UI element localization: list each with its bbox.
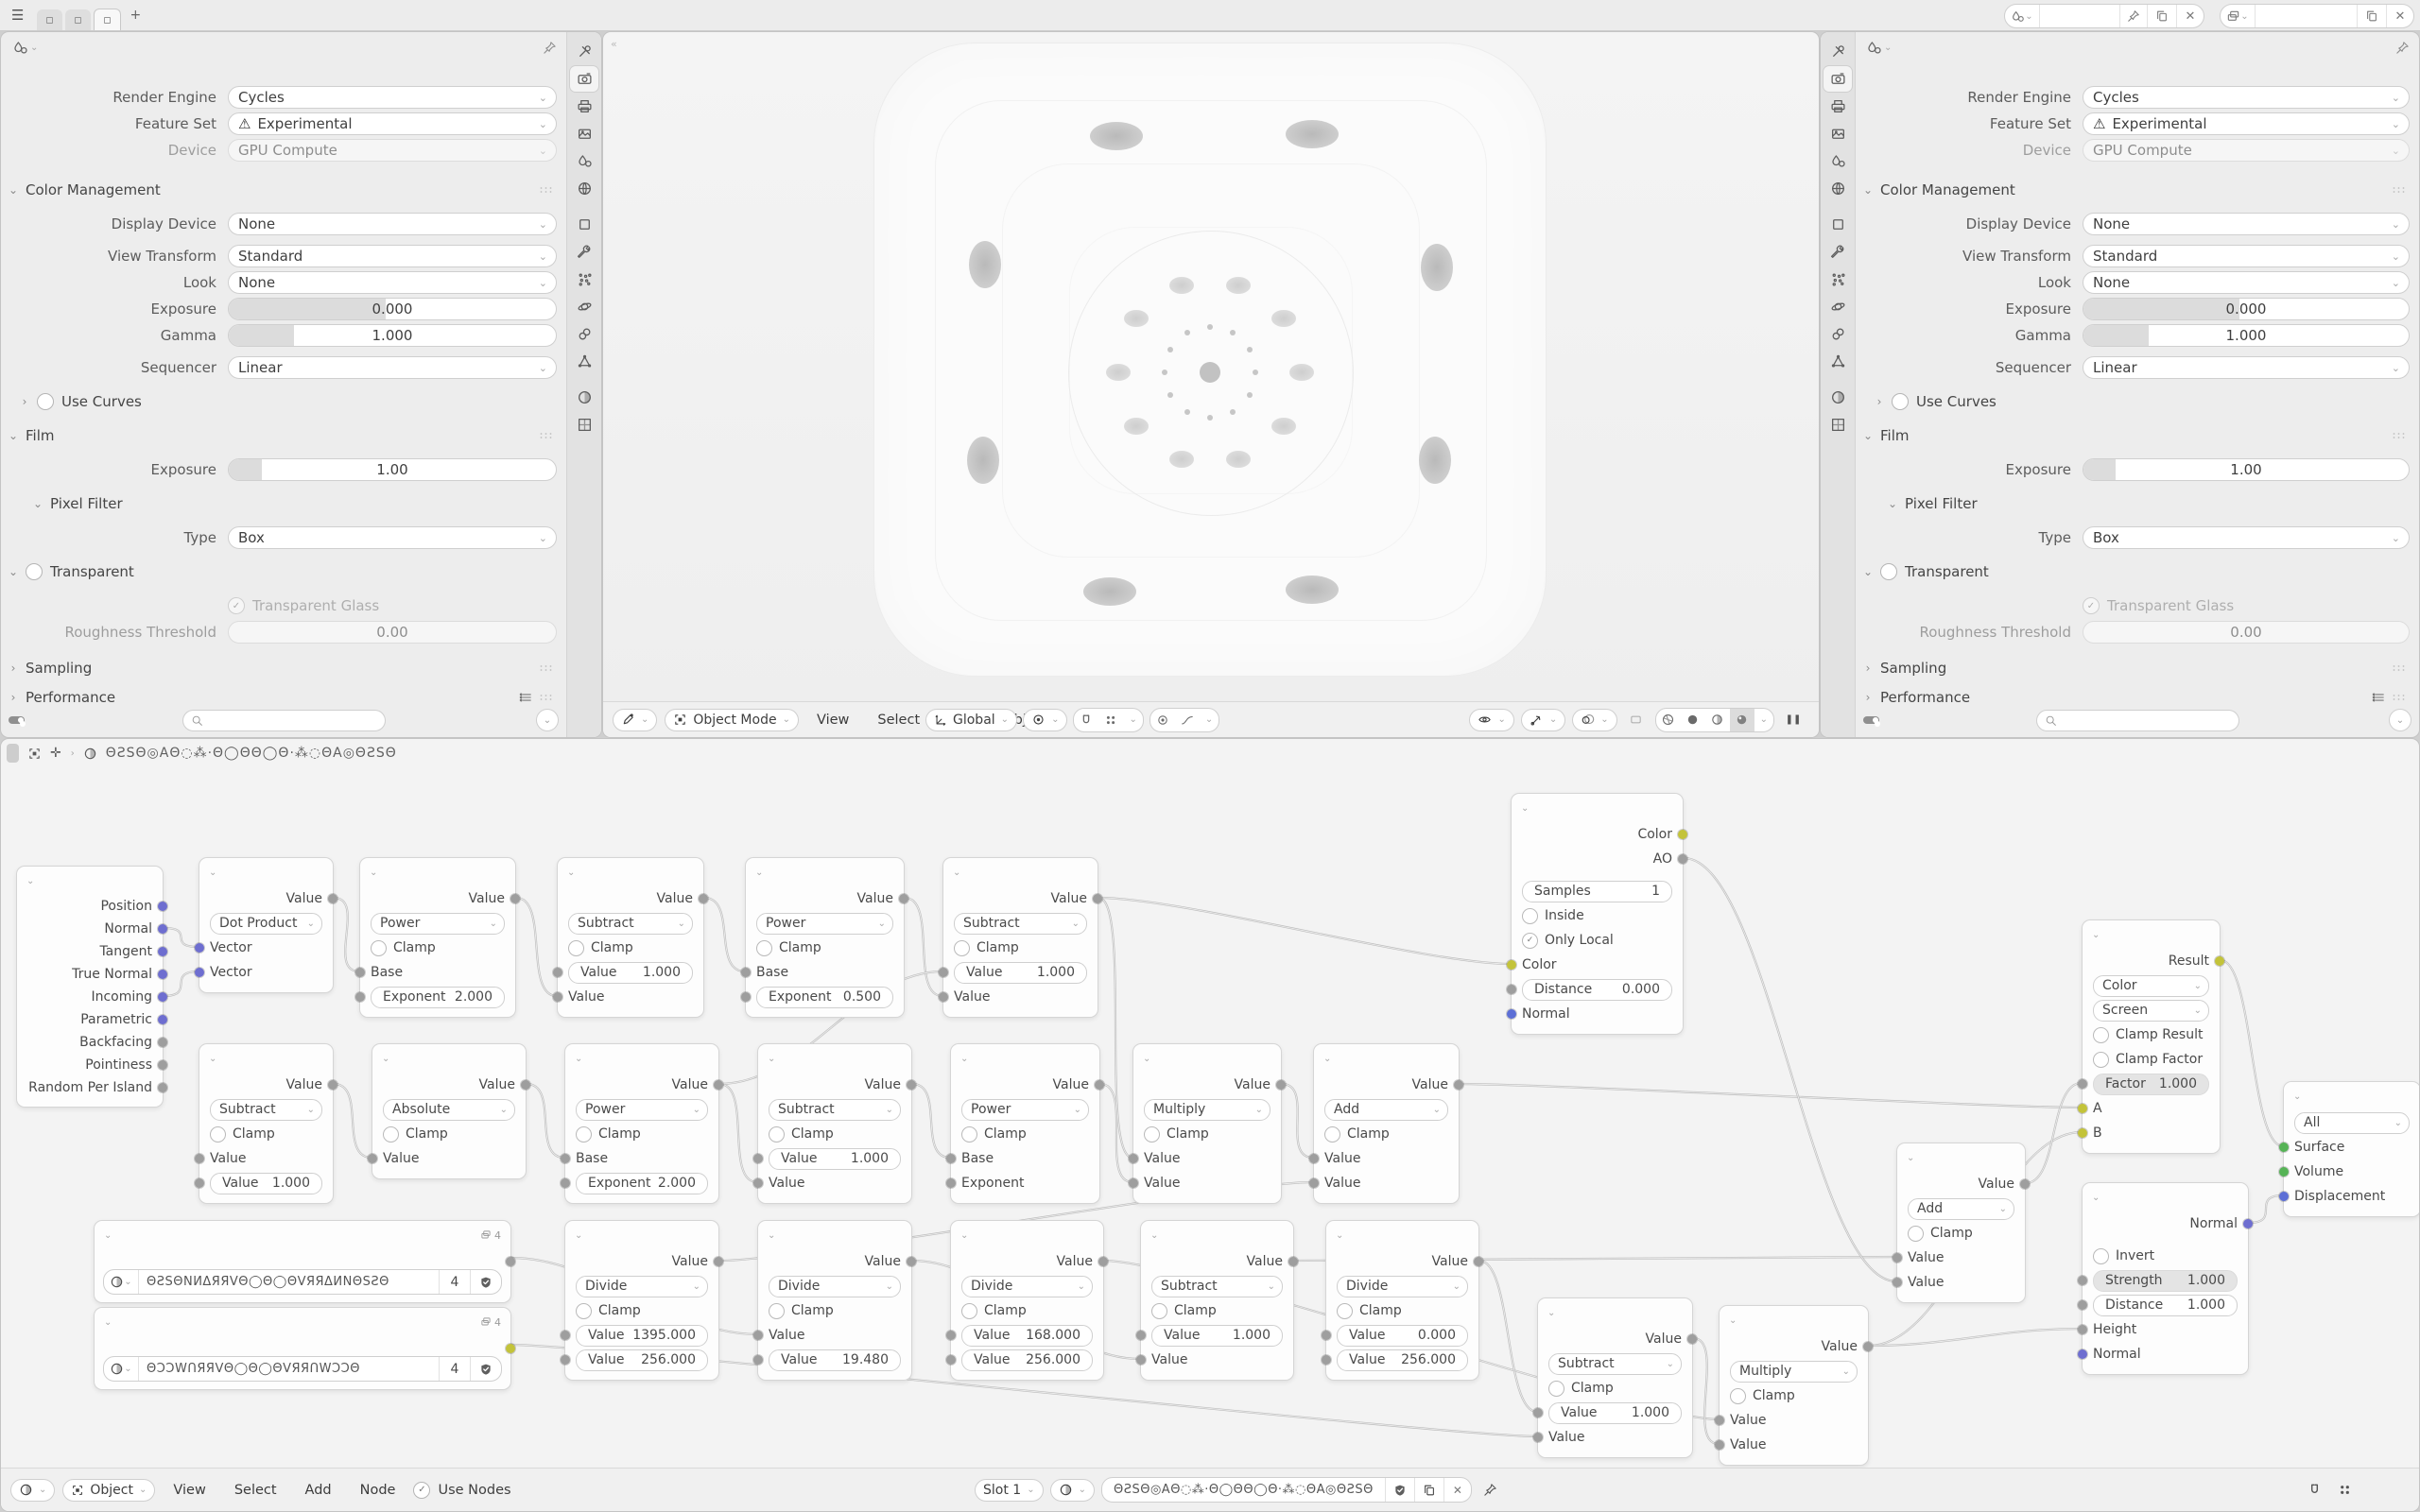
node-math-subtract-6[interactable]: ⌄ValueSubtract⌄ClampValue1.000Value (1537, 1297, 1693, 1458)
section-header-film[interactable]: ⌄Film (1856, 423, 2419, 448)
socket-in-value[interactable] (939, 992, 948, 1002)
tab-modifiers[interactable] (1824, 239, 1852, 265)
tab-texture[interactable] (1824, 412, 1852, 438)
workspace-tab-3[interactable] (94, 9, 121, 30)
collapse-node-icon[interactable]: ⌄ (370, 868, 377, 878)
checkbox-clamp-factor[interactable] (2093, 1052, 2109, 1068)
node-operation-select[interactable]: Subtract⌄ (1548, 1353, 1682, 1375)
tab-particles[interactable] (570, 266, 598, 292)
checkbox[interactable] (1892, 393, 1909, 410)
node-header[interactable]: ⌄ (1133, 1044, 1281, 1073)
socket-in-value[interactable] (1715, 1440, 1724, 1450)
node-operation-select[interactable]: Power⌄ (961, 1099, 1089, 1121)
node-operation-select[interactable]: Divide⌄ (576, 1276, 708, 1297)
image-datablock-selector[interactable]: ⌄ΘƧSΘNИΔЯЯVΘ◯Θ◯ΘVЯЯΔИNΘSƧΘ4 (103, 1269, 502, 1295)
socket-in-displacement[interactable] (2279, 1192, 2289, 1201)
editor-type-selector[interactable]: ⌄ (10, 1479, 55, 1502)
collapse-node-icon[interactable]: ⌄ (1323, 1054, 1331, 1064)
checkbox[interactable] (37, 393, 54, 410)
socket-in-color[interactable] (1507, 960, 1516, 970)
tab-output[interactable] (570, 94, 598, 119)
node-operation-select[interactable]: Add⌄ (1324, 1099, 1448, 1121)
collapse-node-icon[interactable]: ⌄ (1907, 1153, 1914, 1163)
value-field-value[interactable]: Value256.000 (1337, 1349, 1468, 1371)
socket-in-value[interactable] (195, 1154, 204, 1163)
node-math-subtract-4[interactable]: ⌄ValueSubtract⌄ClampValue1.000Value (757, 1043, 912, 1204)
socket-out-pointiness[interactable] (158, 1060, 167, 1070)
checkbox-clamp[interactable] (1730, 1388, 1746, 1404)
collapse-node-icon[interactable]: ⌄ (209, 1054, 216, 1064)
socket-out-value[interactable] (907, 1080, 916, 1090)
node-header[interactable]: ⌄4 (95, 1308, 510, 1336)
node-operation-select[interactable]: Screen⌄ (2093, 1000, 2209, 1022)
value-field-distance[interactable]: Distance1.000 (2093, 1295, 2238, 1316)
section-header-performance[interactable]: ›Performance (1856, 685, 2419, 703)
checkbox-invert[interactable] (2093, 1248, 2109, 1264)
checkbox-clamp[interactable] (576, 1303, 592, 1319)
value-field-value[interactable]: Value0.000 (1337, 1325, 1468, 1347)
gizmo-dropdown[interactable]: ⌄ (1521, 709, 1565, 731)
node-math-multiply-1[interactable]: ⌄ValueMultiply⌄ClampValueValue (1132, 1043, 1282, 1204)
tab-world[interactable] (1824, 176, 1852, 201)
node-header[interactable]: ⌄ (372, 1044, 526, 1073)
socket-in-value[interactable] (553, 992, 562, 1002)
socket-out[interactable] (506, 1344, 515, 1353)
socket-in-base[interactable] (355, 968, 365, 977)
shading-mode-switch[interactable]: ⌄ (1655, 708, 1774, 732)
tab-material[interactable] (1824, 385, 1852, 410)
pin-icon[interactable] (543, 41, 557, 55)
section-header-sampling[interactable]: ›Sampling (1, 656, 566, 680)
section-header-transparent[interactable]: ⌄Transparent (1856, 559, 2419, 584)
shading-rendered[interactable] (1730, 709, 1754, 731)
socket-out-value[interactable] (1454, 1080, 1463, 1090)
dropdown-look[interactable]: None⌄ (2083, 271, 2410, 294)
socket-out-result[interactable] (2215, 956, 2224, 966)
value-field-value[interactable]: Value1.000 (769, 1148, 901, 1170)
collapse-node-icon[interactable]: ⌄ (1547, 1308, 1555, 1318)
collapse-node-icon[interactable]: ⌄ (382, 1054, 389, 1064)
scene-browse-button[interactable]: ⌄ (2005, 5, 2039, 27)
tab-data[interactable] (570, 349, 598, 374)
socket-in-value[interactable] (1715, 1416, 1724, 1425)
checkbox-transparent-glass[interactable]: ✓ (2083, 597, 2100, 614)
checkbox-clamp[interactable] (383, 1126, 399, 1143)
dropdown-type[interactable]: Box⌄ (228, 526, 557, 549)
node-math-power-4[interactable]: ⌄ValuePower⌄ClampBaseExponent (950, 1043, 1100, 1204)
value-field-exponent[interactable]: Exponent2.000 (371, 987, 505, 1008)
tab-texture[interactable] (570, 412, 598, 438)
socket-in-value[interactable] (946, 1331, 956, 1340)
viewport-3d[interactable]: «⌄Object Mode⌄ViewSelectAddObjectGlobal⌄… (602, 31, 1820, 738)
checkbox-inside[interactable] (1522, 908, 1538, 924)
node-operation-select[interactable]: Subtract⌄ (568, 913, 693, 935)
tab-data[interactable] (1824, 349, 1852, 374)
node-operation-select[interactable]: Divide⌄ (1337, 1276, 1468, 1297)
workspace-tab-2[interactable] (65, 9, 91, 30)
socket-in-value[interactable] (553, 968, 562, 977)
tab-object[interactable] (570, 212, 598, 237)
dropdown-feature-set[interactable]: ⚠Experimental⌄ (228, 112, 557, 135)
socket-out-ao[interactable] (1678, 854, 1687, 864)
node-math-absolute[interactable]: ⌄ValueAbsolute⌄ClampValue (372, 1043, 527, 1179)
socket-out-value[interactable] (1474, 1257, 1483, 1266)
tab-physics[interactable] (570, 294, 598, 319)
tab-constraints[interactable] (1824, 321, 1852, 347)
socket-in-value[interactable] (1136, 1331, 1146, 1340)
socket-in-value[interactable] (1129, 1178, 1138, 1188)
checkbox-clamp[interactable] (576, 1126, 592, 1143)
dropdown-display-device[interactable]: None⌄ (2083, 213, 2410, 235)
node-math-subtract-1[interactable]: ⌄ValueSubtract⌄ClampValue1.000Value (557, 857, 704, 1018)
node-geometry[interactable]: ⌄PositionNormalTangentTrue NormalIncomin… (16, 866, 164, 1108)
node-header[interactable]: ⌄ (758, 1044, 911, 1073)
socket-in-value[interactable] (753, 1178, 763, 1188)
value-field-factor[interactable]: Factor1.000 (2093, 1074, 2209, 1095)
checkbox-clamp[interactable] (568, 940, 584, 956)
checkbox-clamp[interactable] (1548, 1381, 1564, 1397)
node-operation-select[interactable]: Divide⌄ (961, 1276, 1093, 1297)
scene-name-field[interactable] (2039, 5, 2119, 27)
slider-exposure[interactable]: 0.000 (2083, 298, 2410, 320)
workspace-tab-1[interactable] (37, 9, 62, 30)
socket-in-exponent[interactable] (355, 992, 365, 1002)
node-header[interactable]: ⌄ (558, 858, 703, 886)
node-operation-select[interactable]: Subtract⌄ (210, 1099, 322, 1121)
falloff-icon[interactable] (1175, 709, 1200, 731)
socket-in-value[interactable] (1309, 1178, 1319, 1188)
node-header[interactable]: ⌄ (1326, 1221, 1478, 1249)
tab-particles[interactable] (1824, 266, 1852, 292)
pin-icon[interactable] (2395, 41, 2410, 55)
socket-out-value[interactable] (1093, 894, 1102, 903)
proportional-editing-controls[interactable]: ⌄ (1149, 708, 1219, 732)
slider-roughness-threshold[interactable]: 0.00 (228, 621, 557, 644)
socket-in-value[interactable] (939, 968, 948, 977)
socket-out-value[interactable] (521, 1080, 530, 1090)
filter-toggle-icon[interactable] (9, 715, 26, 725)
checkbox-clamp[interactable] (1151, 1303, 1167, 1319)
collapse-node-icon[interactable]: ⌄ (960, 1230, 968, 1241)
section-header-use-curves[interactable]: ›Use Curves (1, 389, 566, 414)
menu-view[interactable]: View (163, 1483, 216, 1498)
scene-pin-button[interactable] (2119, 5, 2147, 27)
node-ambient-occlusion[interactable]: ⌄ColorAOSamples1Inside✓Only LocalColorDi… (1511, 793, 1684, 1035)
checkbox-clamp[interactable] (1144, 1126, 1160, 1143)
socket-in-value[interactable] (1533, 1408, 1543, 1417)
socket-out-backfacing[interactable] (158, 1038, 167, 1047)
socket-out-value[interactable] (1288, 1257, 1298, 1266)
view-layer-copy-button[interactable] (2357, 5, 2386, 27)
socket-in-value[interactable] (753, 1355, 763, 1365)
node-operation-select[interactable]: All⌄ (2294, 1112, 2410, 1134)
fake-user-toggle[interactable] (470, 1270, 501, 1294)
socket-out-parametric[interactable] (158, 1015, 167, 1024)
material-name-group[interactable]: ΘƧSΘ◎AΘ◌⁂·Θ◯ΘΘ◯Θ·⁂◌ΘA◎ΘƧSΘ✕ (1101, 1477, 1472, 1503)
section-header-film[interactable]: ⌄Film (1, 423, 566, 448)
tab-world[interactable] (570, 176, 598, 201)
tab-render[interactable] (570, 66, 598, 92)
node-header[interactable]: ⌄ (951, 1044, 1099, 1073)
collapse-region-icon[interactable]: « (611, 38, 617, 50)
checkbox-clamp[interactable] (1324, 1126, 1340, 1143)
socket-in-base[interactable] (561, 1154, 570, 1163)
node-header[interactable]: ⌄ (1512, 794, 1683, 822)
node-operation-select[interactable]: Add⌄ (1908, 1198, 2014, 1220)
socket-in-value[interactable] (1893, 1253, 1902, 1263)
mode-selector[interactable]: Object Mode⌄ (665, 709, 799, 731)
dropdown-device[interactable]: GPU Compute⌄ (228, 139, 557, 162)
scene-copy-button[interactable] (2147, 5, 2176, 27)
node-math-divide-2[interactable]: ⌄ValueDivide⌄ClampValueValue19.480 (757, 1220, 912, 1381)
socket-out-random-per-island[interactable] (158, 1083, 167, 1092)
socket-in-surface[interactable] (2279, 1143, 2289, 1152)
node-header[interactable]: ⌄ (951, 1221, 1103, 1249)
node-operation-select[interactable]: Power⌄ (371, 913, 505, 935)
checkbox-clamp[interactable] (371, 940, 387, 956)
socket-in-value[interactable] (753, 1331, 763, 1340)
collapse-node-icon[interactable]: ⌄ (209, 868, 216, 878)
dropdown-look[interactable]: None⌄ (228, 271, 557, 294)
node-math-subtract-5[interactable]: ⌄ValueSubtract⌄ClampValue1.000Value (1140, 1220, 1294, 1381)
collapse-node-icon[interactable]: ⌄ (768, 1054, 775, 1064)
browse-image-button[interactable]: ⌄ (104, 1357, 138, 1381)
transform-orientation-selector[interactable]: Global⌄ (925, 709, 1017, 731)
tab-modifiers[interactable] (570, 239, 598, 265)
dropdown-display-device[interactable]: None⌄ (228, 213, 557, 235)
node-operation-select[interactable]: Divide⌄ (769, 1276, 901, 1297)
socket-in-value[interactable] (1136, 1355, 1146, 1365)
checkbox-transparent-glass[interactable]: ✓ (228, 597, 245, 614)
socket-in-base[interactable] (946, 1154, 956, 1163)
socket-out-value[interactable] (2020, 1179, 2030, 1189)
node-header[interactable]: ⌄ (565, 1044, 718, 1073)
browse-material-button[interactable]: ⌄ (1050, 1479, 1095, 1502)
value-field-value[interactable]: Value1395.000 (576, 1325, 708, 1347)
checkbox-clamp[interactable] (1908, 1226, 1924, 1242)
section-menu-icon[interactable] (519, 691, 532, 703)
tab-render[interactable] (1824, 66, 1852, 92)
socket-out[interactable] (506, 1257, 515, 1266)
socket-in-distance[interactable] (2078, 1300, 2087, 1310)
socket-out-value[interactable] (510, 894, 520, 903)
socket-in-value[interactable] (753, 1154, 763, 1163)
value-field-samples[interactable]: Samples1 (1522, 881, 1672, 902)
browse-image-button[interactable]: ⌄ (104, 1270, 138, 1294)
tab-scene[interactable] (570, 148, 598, 174)
section-header-color-management[interactable]: ⌄Color Management (1, 178, 566, 202)
checkbox-clamp[interactable] (210, 1126, 226, 1143)
tab-physics[interactable] (1824, 294, 1852, 319)
use-nodes-toggle[interactable]: ✓Use Nodes (413, 1482, 510, 1499)
fake-user-toggle[interactable] (470, 1357, 501, 1381)
dropdown-render-engine[interactable]: Cycles⌄ (228, 86, 557, 109)
collapse-node-icon[interactable]: ⌄ (1521, 803, 1529, 814)
node-vector-math-dot-product[interactable]: ⌄ValueDot Product⌄VectorVector (199, 857, 334, 993)
collapse-node-icon[interactable]: ⌄ (2092, 930, 2100, 940)
checkbox-clamp[interactable] (1337, 1303, 1353, 1319)
value-field-value[interactable]: Value256.000 (576, 1349, 708, 1371)
section-header-color-management[interactable]: ⌄Color Management (1856, 178, 2419, 202)
node-operation-select[interactable]: Power⌄ (756, 913, 893, 935)
node-header[interactable]: ⌄ (2083, 1183, 2248, 1211)
tab-object[interactable] (1824, 212, 1852, 237)
node-header[interactable]: ⌄ (1720, 1306, 1868, 1334)
collapse-node-icon[interactable]: ⌄ (1729, 1315, 1737, 1326)
node-header[interactable]: ⌄ (199, 858, 333, 886)
properties-editor-type-icon[interactable]: ⌄ (12, 40, 38, 56)
node-header[interactable]: ⌄ (746, 858, 904, 886)
visibility-dropdown[interactable]: ⌄ (1469, 709, 1513, 731)
annotate-tool-button[interactable]: ⌄ (613, 709, 657, 731)
tab-view-layer[interactable] (570, 121, 598, 146)
collapse-node-icon[interactable]: ⌄ (768, 1230, 775, 1241)
node-operation-select[interactable]: Absolute⌄ (383, 1099, 515, 1121)
collapse-node-icon[interactable]: ⌄ (1336, 1230, 1343, 1241)
node-operation-select[interactable]: Dot Product⌄ (210, 913, 322, 935)
slider-exposure[interactable]: 1.00 (228, 458, 557, 481)
socket-out-value[interactable] (1687, 1334, 1697, 1344)
socket-out-value[interactable] (328, 1080, 337, 1090)
value-field-value[interactable]: Value168.000 (961, 1325, 1093, 1347)
node-operation-select[interactable]: Subtract⌄ (1151, 1276, 1283, 1297)
collapse-node-icon[interactable]: ⌄ (104, 1317, 112, 1328)
checkbox-only-local[interactable]: ✓ (1522, 933, 1538, 949)
overlays-icon[interactable] (2332, 1479, 2357, 1502)
slider-gamma[interactable]: 1.000 (228, 324, 557, 347)
node-canvas[interactable]: ⌄PositionNormalTangentTrue NormalIncomin… (1, 739, 2419, 1511)
section-header-sampling[interactable]: ›Sampling (1856, 656, 2419, 680)
collapse-node-icon[interactable]: ⌄ (567, 868, 575, 878)
snap-magnet-icon[interactable] (1074, 709, 1098, 731)
view-layer-selector[interactable]: ⌄✕ (2220, 4, 2414, 28)
tab-material[interactable] (570, 385, 598, 410)
collapse-node-icon[interactable]: ⌄ (1143, 1054, 1150, 1064)
dropdown-feature-set[interactable]: ⚠Experimental⌄ (2083, 112, 2410, 135)
section-header-transparent[interactable]: ⌄Transparent (1, 559, 566, 584)
collapse-node-icon[interactable]: ⌄ (1150, 1230, 1158, 1241)
socket-in-a[interactable] (2078, 1104, 2087, 1113)
pivot-point-selector[interactable]: ⌄ (1023, 709, 1067, 731)
checkbox-clamp[interactable] (769, 1303, 785, 1319)
collapse-node-icon[interactable]: ⌄ (104, 1230, 112, 1241)
shading-solid[interactable] (1681, 709, 1705, 731)
search-input[interactable] (182, 710, 386, 731)
collapse-node-icon[interactable]: ⌄ (575, 1054, 582, 1064)
socket-in-value[interactable] (946, 1355, 956, 1365)
node-material-output[interactable]: ⌄All⌄SurfaceVolumeDisplacement (2283, 1081, 2420, 1217)
region-grip[interactable] (7, 744, 19, 763)
collapse-node-icon[interactable]: ⌄ (2092, 1193, 2100, 1203)
node-math-subtract-2[interactable]: ⌄ValueSubtract⌄ClampValue1.000Value (942, 857, 1098, 1018)
xray-toggle[interactable] (1624, 709, 1649, 731)
node-header[interactable]: ⌄ (1314, 1044, 1459, 1073)
socket-in-volume[interactable] (2279, 1167, 2289, 1177)
dropdown-sequencer[interactable]: Linear⌄ (228, 356, 557, 379)
slider-roughness-threshold[interactable]: 0.00 (2083, 621, 2410, 644)
shader-type-selector[interactable]: Object⌄ (62, 1479, 155, 1502)
value-field-distance[interactable]: Distance0.000 (1522, 979, 1672, 1001)
node-bump[interactable]: ⌄NormalInvertStrength1.000Distance1.000H… (2082, 1182, 2249, 1375)
value-field-value[interactable]: Value1.000 (954, 962, 1087, 984)
node-operation-select[interactable]: Multiply⌄ (1730, 1361, 1858, 1383)
slider-exposure[interactable]: 0.000 (228, 298, 557, 320)
material-name-field[interactable]: ΘƧSΘ◎AΘ◌⁂·Θ◯ΘΘ◯Θ·⁂◌ΘA◎ΘƧSΘ (1102, 1478, 1385, 1502)
view-layer-browse-button[interactable]: ⌄ (2221, 5, 2255, 27)
socket-in-normal[interactable] (2078, 1349, 2087, 1359)
tab-view-layer[interactable] (1824, 121, 1852, 146)
app-menu-icon[interactable]: ☰ (11, 7, 24, 24)
socket-out-color[interactable] (1678, 830, 1687, 839)
image-name-field[interactable]: ΘƆƆWՈЯЯVΘ◯Θ◯ΘVЯЯՈWƆƆΘ (138, 1357, 439, 1381)
socket-out-value[interactable] (699, 894, 708, 903)
socket-out-value[interactable] (1276, 1080, 1286, 1090)
section-menu-icon[interactable] (2372, 691, 2385, 703)
menu-node[interactable]: Node (350, 1483, 406, 1498)
dropdown-view-transform[interactable]: Standard⌄ (2083, 245, 2410, 267)
socket-out-incoming[interactable] (158, 992, 167, 1002)
collapse-node-icon[interactable]: ⌄ (953, 868, 960, 878)
material-unlink-button[interactable]: ✕ (1443, 1478, 1471, 1502)
node-mix-color[interactable]: ⌄ResultColor⌄Screen⌄Clamp ResultClamp Fa… (2082, 919, 2221, 1154)
dropdown-view-transform[interactable]: Standard⌄ (228, 245, 557, 267)
checkbox-clamp[interactable] (756, 940, 772, 956)
tab-scene[interactable] (1824, 148, 1852, 174)
proportional-icon[interactable] (1150, 709, 1175, 731)
socket-in-value[interactable] (195, 1178, 204, 1188)
material-slot-selector[interactable]: Slot 1⌄ (975, 1479, 1044, 1502)
node-operation-select[interactable]: Power⌄ (576, 1099, 708, 1121)
tab-tool[interactable] (1824, 39, 1852, 64)
pause-button[interactable]: ❚❚ (1781, 709, 1806, 731)
pin-button[interactable] (1478, 1479, 1503, 1502)
view-layer-name-field[interactable] (2255, 5, 2357, 27)
dropdown-device[interactable]: GPU Compute⌄ (2083, 139, 2410, 162)
node-operation-select[interactable]: Subtract⌄ (954, 913, 1087, 935)
node-header[interactable]: ⌄ (565, 1221, 718, 1249)
tab-output[interactable] (1824, 94, 1852, 119)
node-math-power-3[interactable]: ⌄ValuePower⌄ClampBaseExponent2.000 (564, 1043, 719, 1204)
socket-in-factor[interactable] (2078, 1079, 2087, 1089)
socket-out-value[interactable] (714, 1257, 723, 1266)
socket-in-exponent[interactable] (561, 1178, 570, 1188)
filter-toggle-icon[interactable] (1863, 715, 1881, 725)
socket-in-value[interactable] (1893, 1278, 1902, 1287)
snap-target-icon[interactable] (1098, 709, 1123, 731)
dropdown-type[interactable]: Box⌄ (2083, 526, 2410, 549)
node-operation-select[interactable]: Multiply⌄ (1144, 1099, 1270, 1121)
collapse-node-icon[interactable]: ⌄ (575, 1230, 582, 1241)
slider-gamma[interactable]: 1.000 (2083, 324, 2410, 347)
slider-exposure[interactable]: 1.00 (2083, 458, 2410, 481)
dropdown-render-engine[interactable]: Cycles⌄ (2083, 86, 2410, 109)
node-header[interactable]: ⌄ (1897, 1143, 2025, 1172)
value-field-exponent[interactable]: Exponent2.000 (576, 1173, 708, 1194)
node-header[interactable]: ⌄ (2284, 1082, 2420, 1110)
socket-in-vector[interactable] (195, 943, 204, 953)
collapse-node-icon[interactable]: ⌄ (26, 876, 34, 886)
material-copy-button[interactable] (1414, 1478, 1443, 1502)
value-field-value[interactable]: Value256.000 (961, 1349, 1093, 1371)
node-header[interactable]: ⌄ (758, 1221, 911, 1249)
scene-selector[interactable]: ⌄✕ (2004, 4, 2204, 28)
socket-in-height[interactable] (2078, 1325, 2087, 1334)
node-math-multiply-2[interactable]: ⌄ValueMultiply⌄ClampValueValue (1719, 1305, 1869, 1466)
section-header-performance[interactable]: ›Performance (1, 685, 566, 703)
collapse-node-icon[interactable]: ⌄ (960, 1054, 968, 1064)
section-header-pixel-filter[interactable]: ⌄Pixel Filter (1, 491, 566, 516)
socket-in-distance[interactable] (1507, 985, 1516, 994)
